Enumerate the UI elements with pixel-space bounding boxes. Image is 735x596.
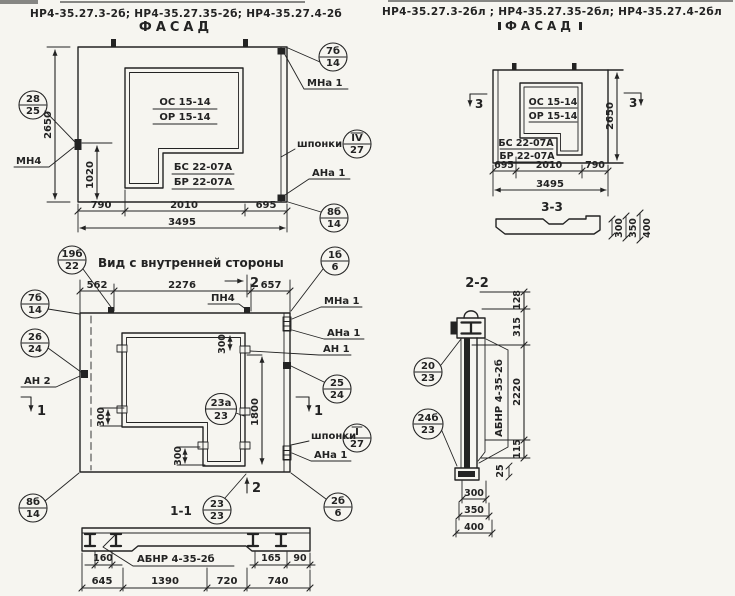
dim-657: 657 (261, 280, 282, 291)
block-mark-os: ОС 15-14 (529, 97, 578, 108)
leader-line (291, 269, 323, 311)
block-mark-or: ОР 15-14 (159, 112, 210, 123)
panel-outline (80, 313, 290, 472)
section-mark-1: 1 (37, 404, 46, 419)
callout-1b-6: 1б 6 (321, 247, 349, 275)
lifting-loop-icon (464, 311, 478, 318)
callout-IV-27: IV 27 (343, 130, 371, 158)
label-ana1: АНа 1 (312, 168, 345, 179)
callout-25-24: 25 24 (323, 375, 351, 403)
callout-top: 8б (327, 206, 341, 218)
label-mna1: МНа 1 (324, 296, 360, 307)
facade-right-title: ФАСАД (505, 19, 575, 33)
dim-128: 128 (512, 290, 523, 310)
callout-20-23: 20 23 (414, 358, 442, 386)
dim-3495: 3495 (536, 179, 564, 190)
dim-115: 115 (512, 439, 523, 459)
anchor-mark (278, 195, 286, 202)
callout-bottom: 25 (26, 106, 40, 117)
dim-315: 315 (512, 317, 523, 337)
section-mark-2: 2 (252, 481, 261, 496)
callout-I-27: I 27 (343, 424, 371, 452)
callout-top: 19б (62, 248, 83, 260)
dim-160: 160 (93, 553, 113, 564)
label-ana1: АНа 1 (327, 328, 360, 339)
callout-top: I (355, 427, 359, 438)
anchor-mark (283, 362, 291, 369)
dim-350: 350 (464, 505, 484, 516)
callout-19b-22: 19б 22 (58, 246, 86, 274)
label-an1: АН 1 (323, 344, 350, 355)
callout-bottom: 14 (26, 509, 40, 520)
label-an2: АН 2 (24, 376, 51, 387)
leader-line (48, 348, 81, 372)
label-mna1: МНа 1 (307, 78, 343, 89)
block-mark-bs: БС 22-07А (498, 138, 554, 149)
callout-top: 7б (326, 45, 340, 57)
facade-left: ФАСАД ОС 15-14 ОР 15-14 БС 22-07А БР 22-… (14, 20, 371, 232)
callout-23a-23: 23а 23 (206, 394, 237, 425)
dim-562: 562 (87, 280, 108, 291)
callout-bottom: 23 (421, 425, 435, 436)
callout-24b-23: 24б 23 (413, 409, 443, 439)
dim-300: 300 (173, 446, 184, 466)
section-3-3-title: 3-3 (541, 200, 563, 214)
facade-right: ФАСАД ОС 15-14 ОР 15-14 БС 22-07А БР 22-… (470, 19, 653, 243)
dim-2010: 2010 (170, 200, 198, 211)
callout-bottom: 24 (330, 390, 344, 401)
callout-28-25: 28 25 (19, 91, 47, 119)
dim-790: 790 (91, 200, 112, 211)
callout-top: 26 (28, 332, 42, 343)
dim-2650: 2650 (605, 102, 616, 130)
anchor-mark (81, 370, 88, 378)
embed-tab-ticks (122, 345, 245, 449)
dim-300: 300 (217, 334, 228, 354)
callout-top: 2б (331, 495, 345, 507)
block-mark-br: БР 22-07А (174, 177, 232, 188)
panel-back-line (478, 338, 485, 461)
leader-line (288, 202, 321, 212)
section-mark-2: 2 (250, 276, 259, 291)
anchor-mark (451, 322, 458, 335)
callout-bottom: 23 (214, 411, 228, 422)
dim-350: 350 (628, 218, 639, 238)
callout-top: 23а (211, 398, 232, 409)
callout-7b-14: 7б 14 (319, 43, 347, 71)
label-ana1: АНа 1 (314, 450, 347, 461)
callout-top: 20 (421, 361, 435, 372)
dim-740: 740 (268, 576, 289, 587)
anchor-mark (108, 307, 114, 313)
inner-view: 19б 22 Вид с внутренней стороны 562 2276… (19, 246, 371, 524)
callout-top: 25 (330, 378, 344, 389)
section-mark-1: 1 (314, 404, 323, 419)
block-mark-or: ОР 15-14 (529, 111, 578, 122)
scan-streak (0, 0, 38, 4)
callout-bottom: 27 (350, 439, 364, 450)
dim-400: 400 (642, 218, 653, 238)
callout-bottom: 6 (335, 508, 342, 519)
dim-300: 300 (96, 407, 107, 427)
leader-line (285, 179, 350, 195)
ibeam-icon (462, 323, 481, 334)
callout-2b-6: 2б 6 (324, 493, 352, 521)
dim-300: 300 (464, 488, 484, 499)
callout-top: 1б (328, 249, 342, 261)
dim-165: 165 (261, 553, 281, 564)
inner-view-title: Вид с внутренней стороны (98, 256, 284, 270)
leader-line (281, 149, 295, 157)
blueprint-sheet: НР4-35.27.3-2б; НР4-35.27.35-2б; НР4-35.… (0, 0, 735, 596)
lifting-loop-icon (243, 39, 248, 47)
callout-bottom: 23 (210, 511, 224, 522)
dim-25: 25 (495, 464, 506, 477)
leader-line (291, 473, 326, 499)
dim-1020: 1020 (85, 161, 96, 189)
label-shponki: шпонки (297, 139, 342, 150)
section-mark-3: 3 (475, 97, 483, 111)
dim-2220: 2220 (512, 378, 523, 406)
callout-top: IV (351, 133, 363, 144)
callout-top: 24б (418, 412, 439, 424)
dim-720: 720 (217, 576, 238, 587)
section-mark-3: 3 (629, 96, 637, 110)
dim-695: 695 (494, 160, 514, 171)
scan-artifacts (0, 0, 733, 4)
callout-8b-14: 8б 14 (320, 204, 348, 232)
callout-bottom: 14 (326, 58, 340, 69)
leader-line (442, 431, 457, 466)
callout-top: 8б (26, 496, 40, 508)
label-mn4: МН4 (16, 156, 41, 167)
callout-bottom: 14 (327, 219, 341, 230)
label-block: АБНР 4-35-2б (137, 553, 215, 565)
callout-bottom: 27 (350, 145, 364, 156)
section-1-1-title: 1-1 (170, 504, 192, 518)
callout-bottom: 14 (28, 305, 42, 316)
block-mark-os: ОС 15-14 (159, 97, 210, 108)
header-left: НР4-35.27.3-2б; НР4-35.27.35-2б; НР4-35.… (30, 8, 342, 20)
dim-1390: 1390 (151, 576, 179, 587)
callout-top: 7б (28, 292, 42, 304)
dim-400: 400 (464, 522, 484, 533)
dim-90: 90 (293, 553, 307, 564)
section-1-1: 1-1 АБНР 4-35-2б 160 165 90 645 1390 720… (79, 504, 315, 591)
tick-mark (579, 22, 582, 30)
leader-line (291, 366, 324, 382)
anchor-mark (244, 307, 250, 313)
callout-26-24: 26 24 (21, 329, 49, 357)
label-block: АБНР 4-35-2б (493, 359, 505, 437)
section-2-2: 2-2 АБНР 4-35-2б 20 23 24б 23 12 (413, 276, 530, 537)
callout-bottom: 23 (421, 373, 435, 384)
dim-300: 300 (614, 218, 625, 238)
callout-top: 23 (210, 499, 224, 510)
scan-streak (388, 0, 733, 2)
dim-695: 695 (256, 200, 277, 211)
leader-line (208, 304, 247, 310)
leader-line (291, 441, 309, 445)
callout-8b-14: 8б 14 (19, 494, 47, 522)
anchor-mark (458, 471, 475, 477)
callout-7b-14: 7б 14 (21, 290, 49, 318)
dim-3495: 3495 (168, 217, 196, 228)
dim-2276: 2276 (168, 280, 196, 291)
dim-790: 790 (585, 160, 605, 171)
lifting-loop-icon (111, 39, 116, 47)
section-2-2-title: 2-2 (465, 276, 489, 291)
dim-645: 645 (92, 576, 113, 587)
header-right: НР4-35.27.3-2бл ; НР4-35.27.35-2бл; НР4-… (382, 6, 722, 18)
anchor-mark (75, 139, 82, 150)
callout-bottom: 24 (28, 344, 42, 355)
dim-1800: 1800 (250, 398, 261, 426)
leader-line (225, 474, 246, 498)
leader-line (288, 48, 320, 62)
dim-25-line (506, 463, 512, 480)
facade-left-title: ФАСАД (139, 20, 213, 35)
callout-bottom: 22 (65, 261, 79, 272)
leader-line (45, 473, 79, 501)
scan-streak (60, 1, 305, 3)
block-mark-bs: БС 22-07А (174, 162, 232, 173)
label-pn4: ПН4 (211, 293, 235, 304)
leader-line (292, 307, 362, 319)
leader-line (48, 309, 79, 314)
panel-core (464, 338, 470, 468)
dim-2010: 2010 (536, 160, 563, 171)
callout-bottom: 6 (332, 262, 339, 273)
leader-line (441, 339, 461, 365)
tick-mark (498, 22, 501, 30)
callout-23-23: 23 23 (203, 496, 231, 524)
section-3-3-profile (496, 216, 600, 234)
callout-top: 28 (26, 94, 40, 105)
ibeam-icon (85, 534, 286, 546)
